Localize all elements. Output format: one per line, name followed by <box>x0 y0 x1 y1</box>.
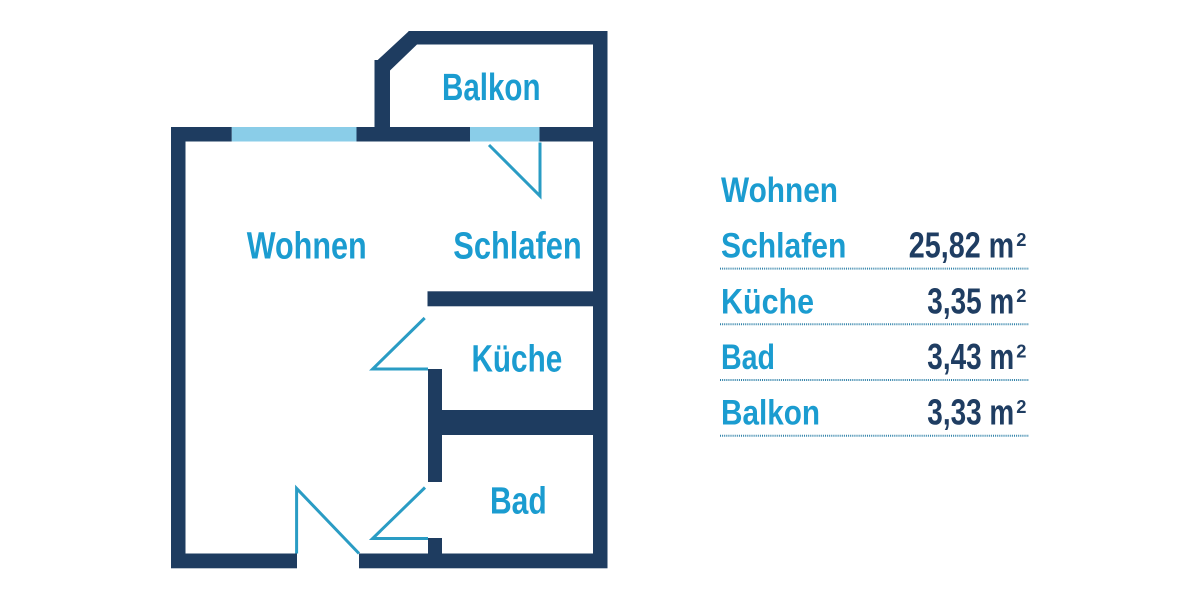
svg-text:2: 2 <box>1016 229 1026 250</box>
svg-text:3,33 m: 3,33 m <box>927 392 1014 433</box>
svg-text:Wohnen: Wohnen <box>721 171 838 210</box>
svg-text:Schlafen: Schlafen <box>721 227 846 266</box>
svg-text:2: 2 <box>1016 285 1026 306</box>
svg-text:Schlafen: Schlafen <box>453 225 581 267</box>
svg-text:Balkon: Balkon <box>442 67 541 109</box>
svg-text:3,43 m: 3,43 m <box>927 336 1014 377</box>
svg-text:Bad: Bad <box>490 480 547 522</box>
svg-text:Küche: Küche <box>721 283 814 322</box>
svg-text:25,82 m: 25,82 m <box>909 225 1014 266</box>
svg-text:Balkon: Balkon <box>721 394 820 433</box>
svg-text:2: 2 <box>1016 341 1026 362</box>
svg-text:3,35 m: 3,35 m <box>927 281 1014 322</box>
svg-text:2: 2 <box>1016 396 1026 417</box>
svg-text:Wohnen: Wohnen <box>247 225 367 267</box>
svg-text:Bad: Bad <box>721 338 775 377</box>
svg-text:Küche: Küche <box>472 339 563 381</box>
